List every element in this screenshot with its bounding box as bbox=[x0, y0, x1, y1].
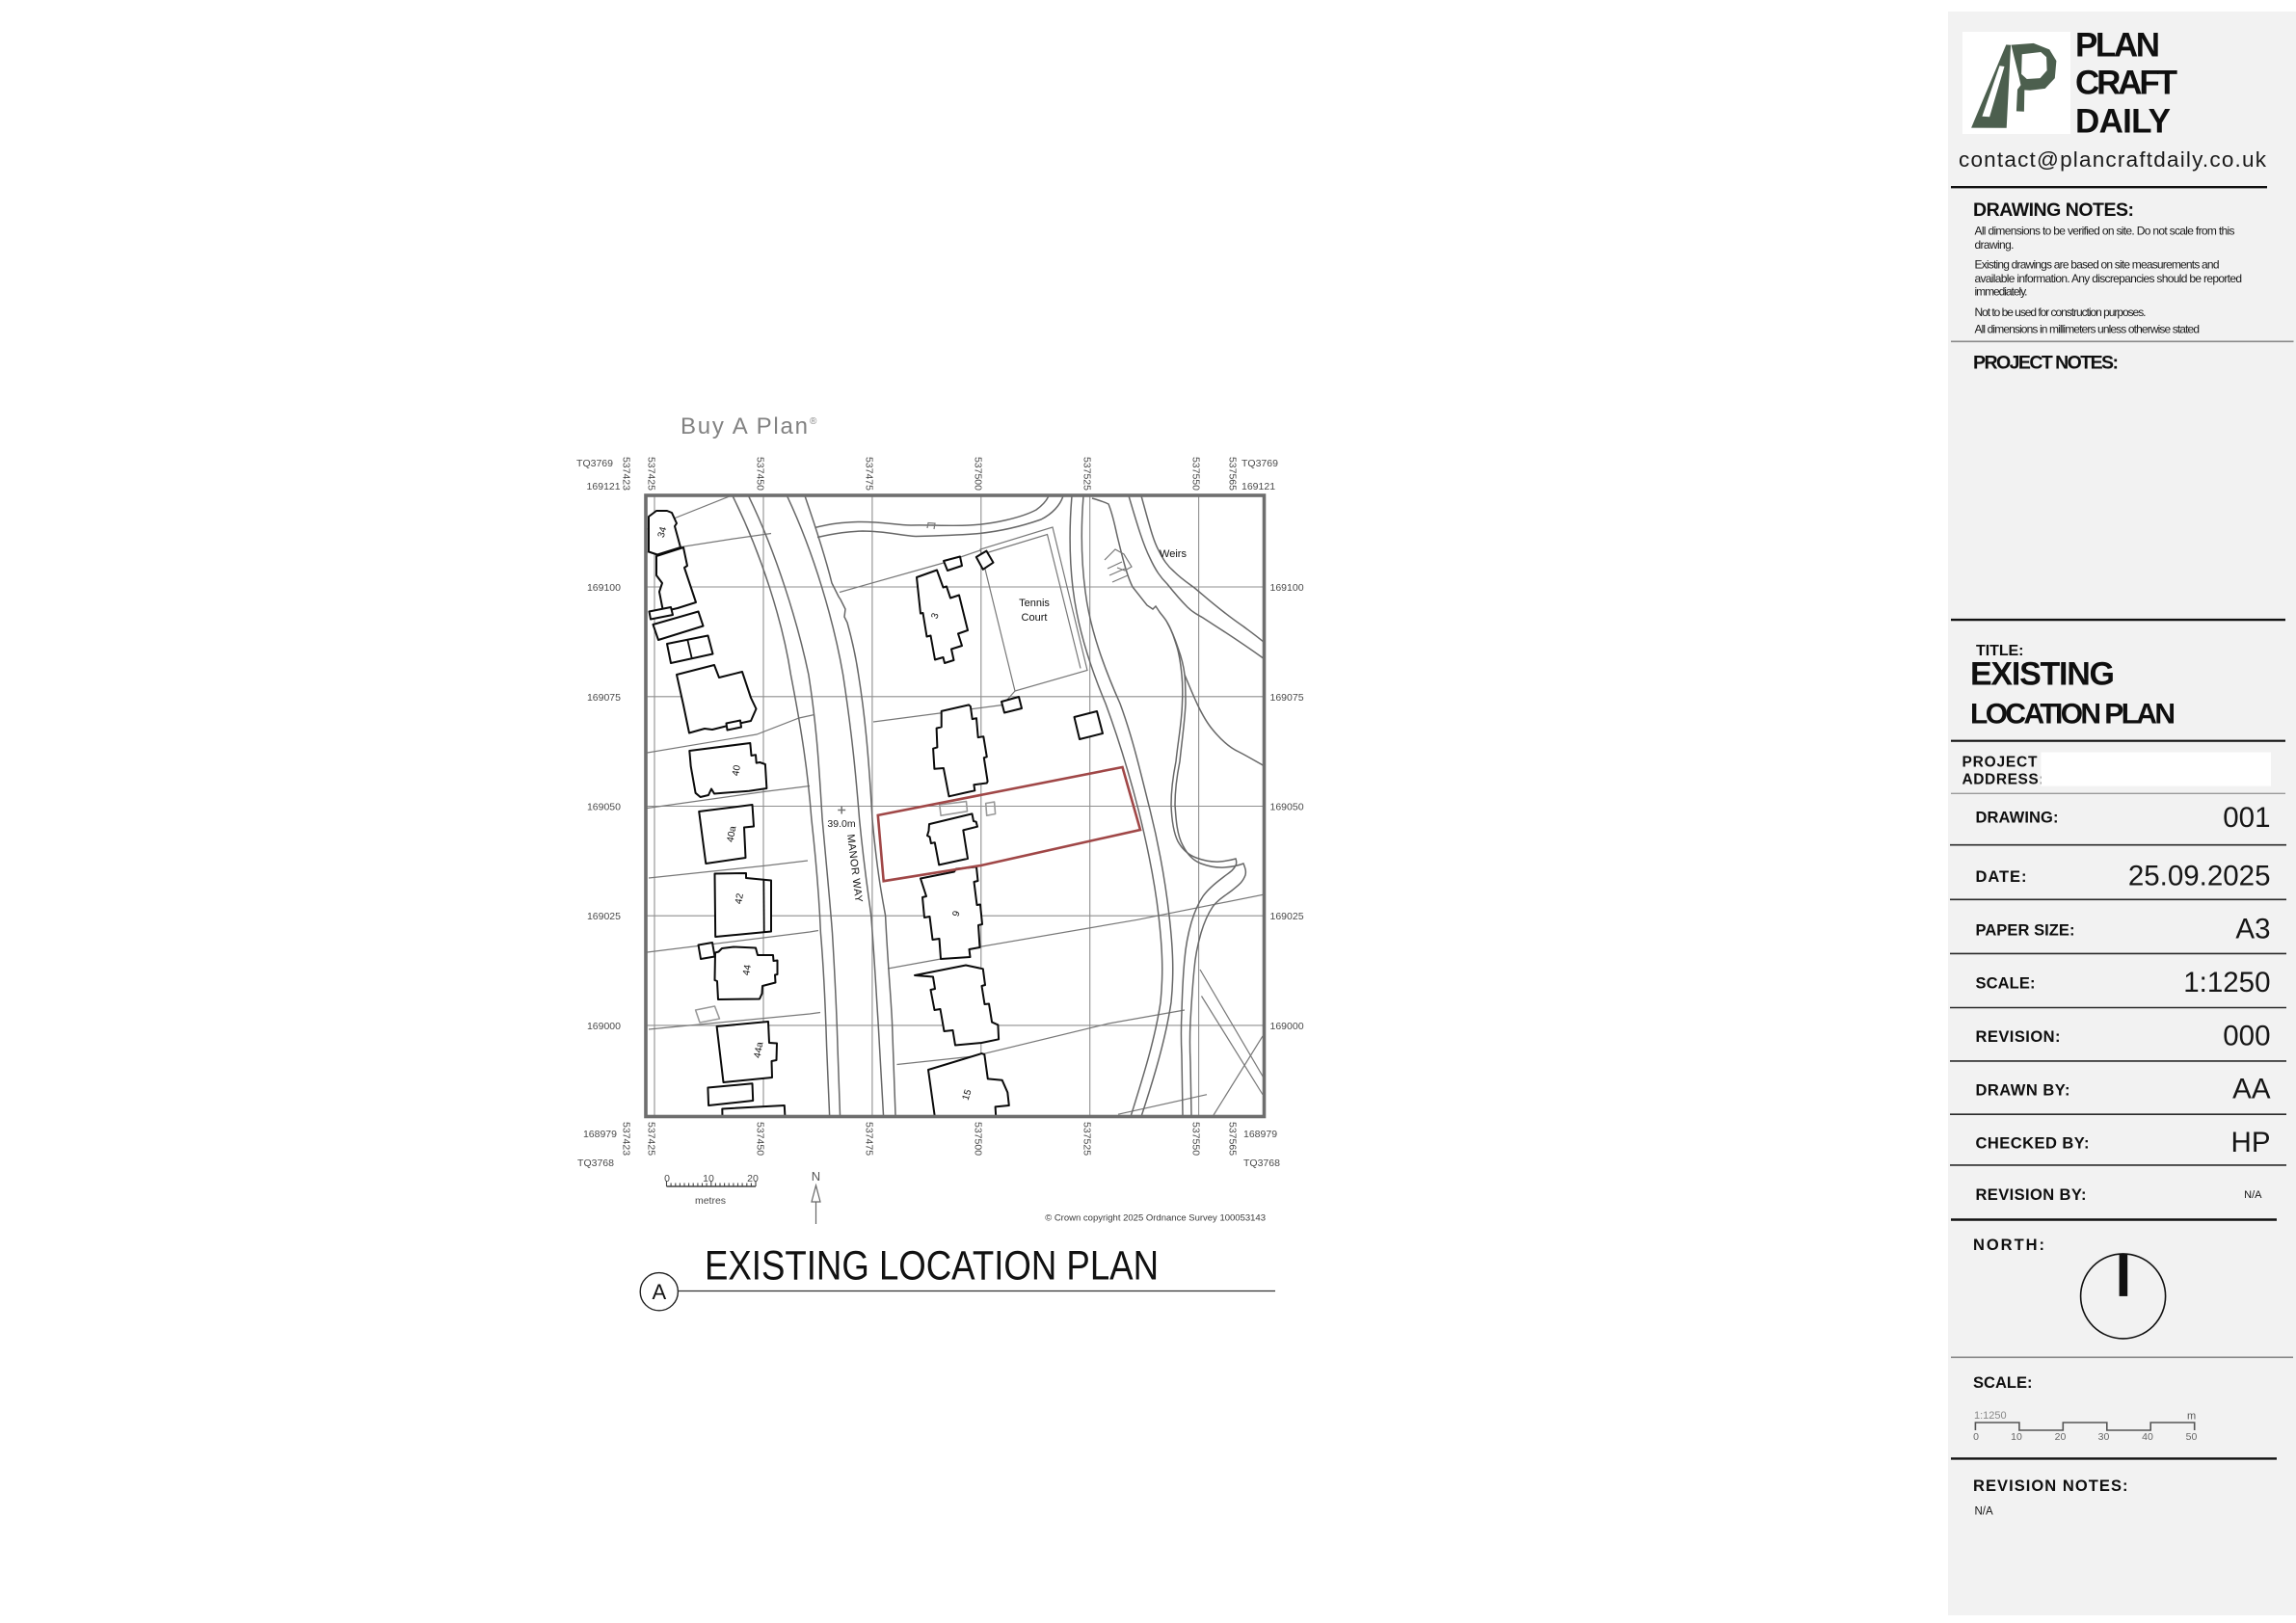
svg-text:CHECKED BY:: CHECKED BY: bbox=[1976, 1135, 2090, 1153]
svg-text:537525: 537525 bbox=[1081, 1122, 1093, 1156]
svg-text:PROJECT: PROJECT bbox=[1962, 755, 2039, 771]
svg-text:N/A: N/A bbox=[2244, 1189, 2262, 1201]
svg-text:537423: 537423 bbox=[621, 457, 632, 491]
svg-text:001: 001 bbox=[2223, 802, 2270, 834]
svg-text:DRAWING:: DRAWING: bbox=[1976, 810, 2059, 827]
svg-text:All dimensions in millimeters: All dimensions in millimeters unless oth… bbox=[1975, 323, 2201, 336]
svg-text:ADDRESS:: ADDRESS: bbox=[1962, 772, 2044, 788]
svg-text:PROJECT NOTES:: PROJECT NOTES: bbox=[1973, 353, 2119, 374]
svg-text:537500: 537500 bbox=[973, 457, 984, 491]
svg-text:SCALE:: SCALE: bbox=[1973, 1374, 2033, 1392]
svg-text:N: N bbox=[812, 1169, 820, 1184]
svg-text:0: 0 bbox=[664, 1173, 670, 1184]
svg-text:25.09.2025: 25.09.2025 bbox=[2128, 861, 2271, 892]
svg-text:169075: 169075 bbox=[1270, 692, 1304, 704]
svg-text:169100: 169100 bbox=[587, 582, 621, 594]
svg-text:Tennis: Tennis bbox=[1019, 598, 1050, 609]
svg-text:169100: 169100 bbox=[1270, 582, 1304, 594]
svg-text:537450: 537450 bbox=[755, 1122, 766, 1156]
svg-text:Existing drawings are based on: Existing drawings are based on site meas… bbox=[1975, 258, 2220, 272]
svg-text:NORTH:: NORTH: bbox=[1973, 1237, 2044, 1254]
svg-text:10: 10 bbox=[2011, 1431, 2022, 1443]
svg-text:®: ® bbox=[810, 416, 817, 427]
svg-text:available information. Any dis: available information. Any discrepancies… bbox=[1975, 272, 2243, 285]
svg-text:N/A: N/A bbox=[1975, 1506, 1994, 1518]
svg-text:© Crown copyright 2025 Ordnanc: © Crown copyright 2025 Ordnance Survey 1… bbox=[1045, 1213, 1266, 1224]
svg-text:REVISION:: REVISION: bbox=[1976, 1028, 2061, 1046]
svg-text:TQ3768: TQ3768 bbox=[1243, 1157, 1280, 1169]
svg-text:PLAN: PLAN bbox=[2075, 26, 2160, 64]
svg-text:39.0m: 39.0m bbox=[827, 818, 855, 830]
svg-text:drawing.: drawing. bbox=[1975, 238, 2015, 252]
svg-text:169050: 169050 bbox=[587, 802, 621, 813]
svg-text:169025: 169025 bbox=[1270, 911, 1304, 922]
svg-text:537550: 537550 bbox=[1190, 1122, 1202, 1156]
svg-text:m: m bbox=[2187, 1411, 2196, 1423]
svg-text:169075: 169075 bbox=[587, 692, 621, 704]
svg-text:LOCATION PLAN: LOCATION PLAN bbox=[1970, 699, 2176, 731]
svg-text:A: A bbox=[652, 1280, 666, 1304]
svg-text:537525: 537525 bbox=[1081, 457, 1093, 491]
svg-text:HP: HP bbox=[2231, 1127, 2271, 1158]
svg-text:TQ3769: TQ3769 bbox=[1241, 458, 1278, 469]
svg-text:169050: 169050 bbox=[1270, 802, 1304, 813]
svg-text:000: 000 bbox=[2223, 1021, 2270, 1052]
svg-text:537475: 537475 bbox=[864, 457, 875, 491]
svg-text:TQ3768: TQ3768 bbox=[577, 1157, 614, 1169]
svg-text:168979: 168979 bbox=[583, 1129, 617, 1140]
svg-text:168979: 168979 bbox=[1243, 1129, 1277, 1140]
svg-text:1:1250: 1:1250 bbox=[1974, 1410, 2007, 1422]
svg-text:TQ3769: TQ3769 bbox=[576, 458, 613, 469]
svg-text:169121: 169121 bbox=[587, 481, 621, 492]
svg-text:EXISTING: EXISTING bbox=[1970, 656, 2115, 693]
svg-text:169000: 169000 bbox=[587, 1021, 621, 1032]
svg-text:0: 0 bbox=[1973, 1431, 1979, 1443]
svg-text:40: 40 bbox=[2142, 1431, 2153, 1443]
svg-text:metres: metres bbox=[695, 1195, 726, 1207]
svg-text:Buy A Plan: Buy A Plan bbox=[681, 413, 808, 439]
svg-text:537423: 537423 bbox=[621, 1122, 632, 1156]
svg-text:Court: Court bbox=[1022, 612, 1048, 624]
svg-text:DATE:: DATE: bbox=[1976, 868, 2027, 886]
svg-text:DRAWN BY:: DRAWN BY: bbox=[1976, 1081, 2070, 1099]
svg-text:1:1250: 1:1250 bbox=[2183, 967, 2270, 998]
svg-text:SCALE:: SCALE: bbox=[1976, 975, 2036, 993]
svg-text:AA: AA bbox=[2232, 1074, 2271, 1105]
svg-text:169000: 169000 bbox=[1270, 1021, 1304, 1032]
svg-text:CRAFT: CRAFT bbox=[2075, 65, 2177, 102]
svg-text:30: 30 bbox=[2098, 1431, 2110, 1443]
svg-text:DAILY: DAILY bbox=[2075, 103, 2171, 141]
svg-text:50: 50 bbox=[2186, 1431, 2198, 1443]
svg-text:537565: 537565 bbox=[1227, 457, 1239, 491]
svg-text:A3: A3 bbox=[2235, 914, 2270, 945]
svg-text:REVISION NOTES:: REVISION NOTES: bbox=[1973, 1477, 2128, 1495]
svg-text:REVISION BY:: REVISION BY: bbox=[1976, 1186, 2087, 1204]
svg-text:537565: 537565 bbox=[1227, 1122, 1239, 1156]
svg-text:immediately.: immediately. bbox=[1975, 285, 2028, 299]
svg-text:537450: 537450 bbox=[755, 457, 766, 491]
svg-text:20: 20 bbox=[2055, 1431, 2067, 1443]
svg-text:537500: 537500 bbox=[973, 1122, 984, 1156]
svg-text:All dimensions to be verified: All dimensions to be verified on site. D… bbox=[1975, 225, 2235, 238]
svg-text:DRAWING NOTES:: DRAWING NOTES: bbox=[1973, 200, 2134, 221]
svg-text:PAPER SIZE:: PAPER SIZE: bbox=[1976, 921, 2075, 939]
svg-text:537425: 537425 bbox=[646, 1122, 657, 1156]
svg-text:169025: 169025 bbox=[587, 911, 621, 922]
svg-text:Weirs: Weirs bbox=[1160, 548, 1187, 560]
svg-text:537425: 537425 bbox=[646, 457, 657, 491]
svg-text:10: 10 bbox=[703, 1173, 714, 1184]
svg-text:169121: 169121 bbox=[1241, 481, 1275, 492]
svg-text:20: 20 bbox=[747, 1173, 759, 1184]
svg-text:Not to be used for constructio: Not to be used for construction purposes… bbox=[1975, 306, 2147, 319]
svg-text:EXISTING LOCATION PLAN: EXISTING LOCATION PLAN bbox=[705, 1243, 1159, 1290]
svg-text:537475: 537475 bbox=[864, 1122, 875, 1156]
svg-text:537550: 537550 bbox=[1190, 457, 1202, 491]
